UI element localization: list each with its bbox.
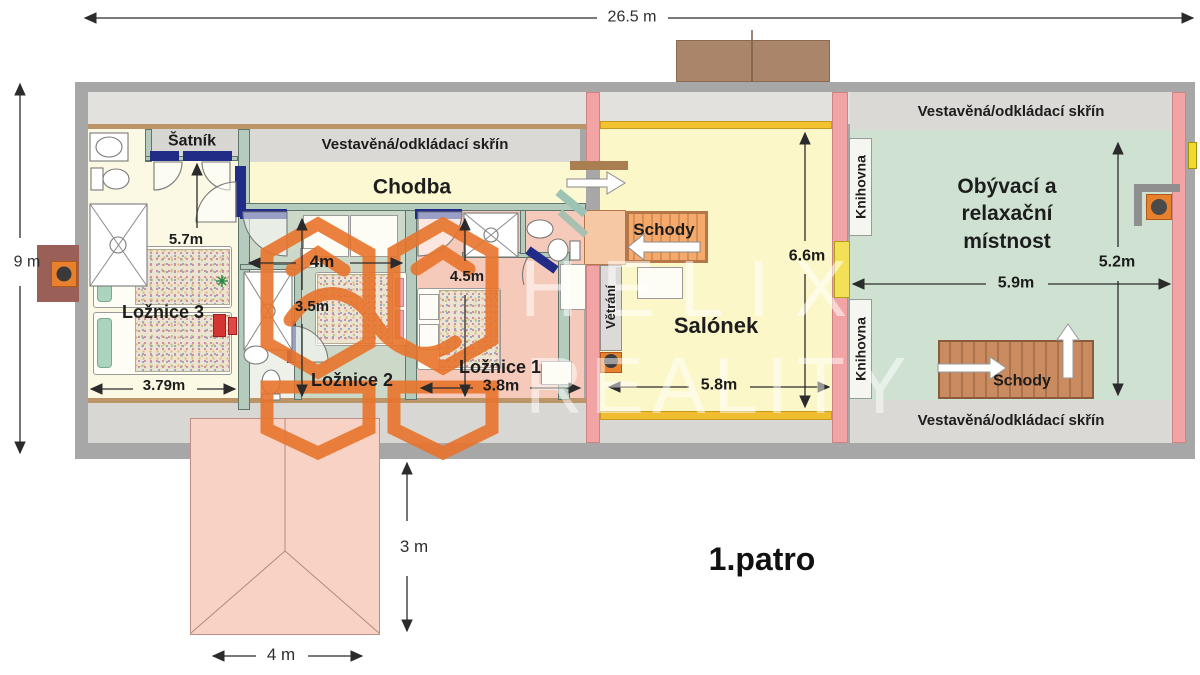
room-label-loznice2: Ložnice 2 <box>311 370 393 392</box>
floor-title: 1.patro <box>709 540 816 578</box>
dim-annex-w: 4 m <box>267 645 295 665</box>
room-label-salonek: Salónek <box>674 313 758 339</box>
dim-satnik: 5.7m <box>169 231 203 249</box>
room-label-vestavena-mid: Vestavěná/odkládací skřín <box>322 136 509 154</box>
dim-annex-h: 3 m <box>400 537 428 557</box>
dim-total-width: 26.5 m <box>608 7 657 26</box>
dim-obyvaci-h: 5.2m <box>1099 252 1135 271</box>
dim-loznice2-w: 4m <box>310 252 335 272</box>
dim-total-height: 9 m <box>14 252 41 271</box>
room-label-vetrani: Větrání <box>603 285 619 329</box>
room-label-satnik: Šatník <box>168 131 216 150</box>
floorplan-canvas: HELIX REALITY <box>0 0 1200 675</box>
dimension-lines-layer <box>0 0 1200 675</box>
room-label-knihovna-top: Knihovna <box>853 155 870 219</box>
room-label-schody-left: Schody <box>633 220 694 240</box>
dim-loznice3: 3.79m <box>143 377 186 395</box>
dim-loznice2-h: 3.5m <box>295 298 329 316</box>
dim-obyvaci-w: 5.9m <box>998 273 1034 292</box>
dim-salonek-h: 6.6m <box>789 246 825 265</box>
dim-loznice1-w: 3.8m <box>483 376 519 395</box>
room-label-chodba: Chodba <box>373 174 451 199</box>
room-label-schody-right: Schody <box>993 371 1051 390</box>
room-label-loznice3: Ložnice 3 <box>122 302 204 324</box>
room-label-vestavena-right-bottom: Vestavěná/odkládací skřín <box>918 412 1105 430</box>
room-label-obyvaci: Obývací a relaxační místnost <box>932 173 1082 255</box>
room-label-vestavena-right-top: Vestavěná/odkládací skřín <box>918 103 1105 121</box>
room-label-knihovna-bottom: Knihovna <box>853 317 870 381</box>
dim-loznice1-h: 4.5m <box>450 268 484 286</box>
dim-salonek-w: 5.8m <box>701 375 737 394</box>
